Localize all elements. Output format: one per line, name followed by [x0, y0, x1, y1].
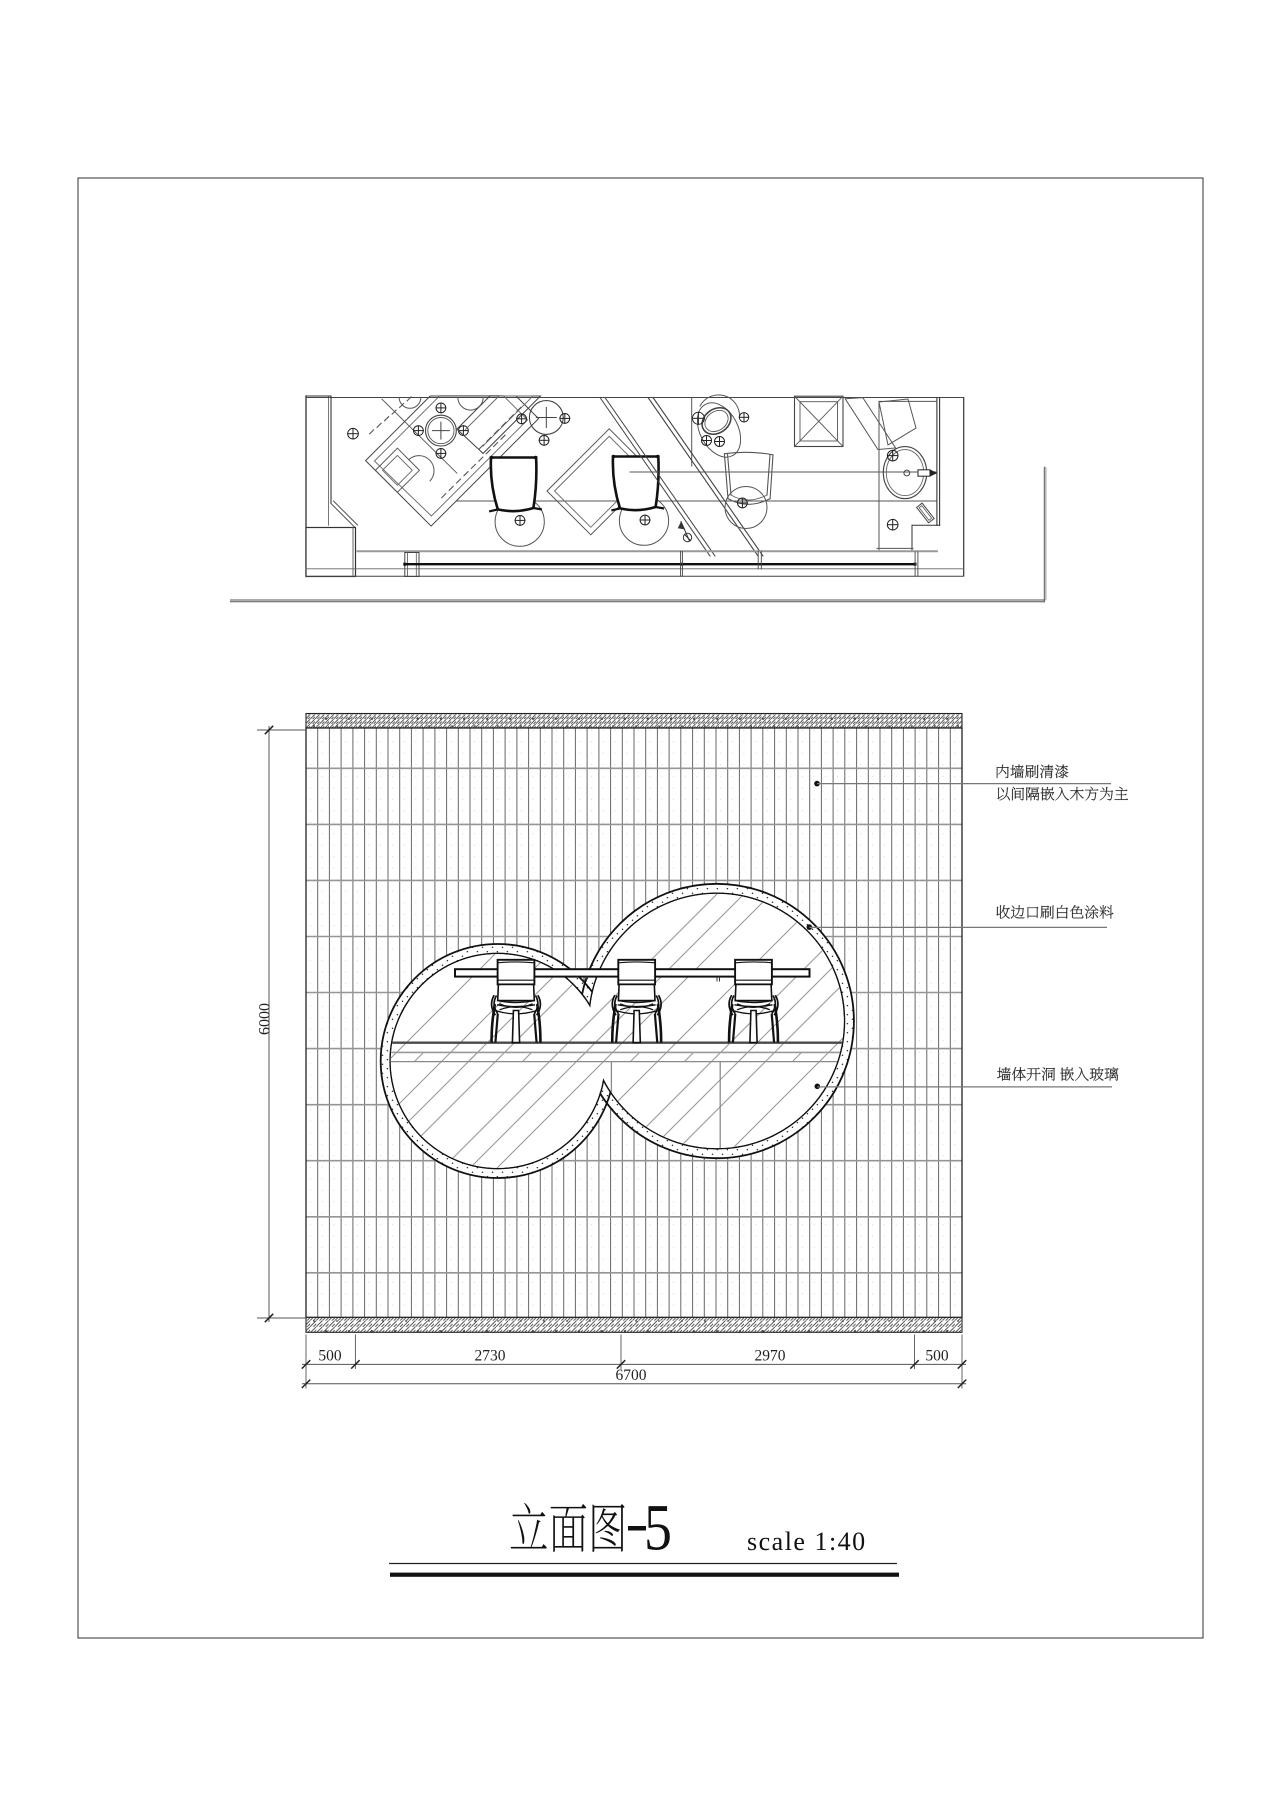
svg-text:500: 500 — [925, 1348, 949, 1365]
svg-text:2730: 2730 — [475, 1348, 506, 1365]
svg-text:6700: 6700 — [616, 1367, 647, 1384]
svg-text:scale 1:40: scale 1:40 — [747, 1527, 867, 1556]
svg-text:2970: 2970 — [755, 1348, 786, 1365]
svg-text:6000: 6000 — [257, 1003, 274, 1035]
svg-text:500: 500 — [318, 1348, 342, 1365]
svg-text:5: 5 — [644, 1491, 672, 1564]
